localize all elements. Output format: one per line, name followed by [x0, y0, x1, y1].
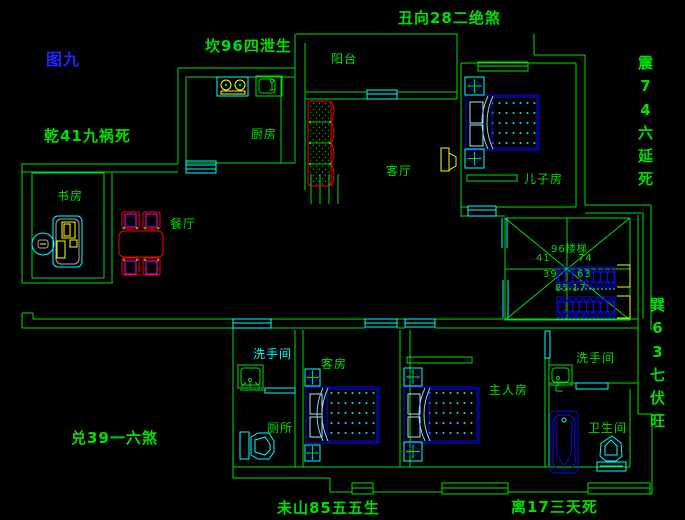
- figure-caption: 图九: [46, 46, 80, 70]
- annotation-right-lower: 巽63七伏旺: [648, 294, 668, 434]
- annotation-left-upper: 乾41九祸死: [44, 125, 131, 146]
- chair-icon: [122, 212, 139, 229]
- room-label-master: 主人房: [489, 381, 528, 398]
- annotation-top-left: 坎96四泄生: [205, 35, 292, 56]
- nightstand-icon: [465, 149, 484, 168]
- stair-number-se: 17: [572, 283, 587, 294]
- sofa-icon: [308, 101, 334, 186]
- door-icon: [545, 331, 550, 358]
- nightstand-icon: [305, 445, 320, 461]
- stove-icon: [217, 77, 248, 96]
- chair-icon: [143, 258, 160, 275]
- toilet-icon: [597, 436, 626, 471]
- door-icon: [265, 388, 295, 393]
- chair-icon: [122, 258, 139, 275]
- window-icon: [576, 383, 608, 389]
- annotation-bottom-left: 未山85五五生: [277, 497, 380, 518]
- stair-number-e: 63: [577, 269, 592, 280]
- dining-table-icon: [119, 231, 163, 257]
- nightstand-icon: [465, 77, 484, 95]
- window-icon: [468, 206, 496, 216]
- nightstand-icon: [404, 442, 422, 461]
- room-label-dining: 餐厅: [170, 215, 196, 232]
- room-label-living: 客厅: [386, 162, 412, 179]
- annotation-bottom-right: 离17三天死: [511, 496, 598, 517]
- stair-number-nw: 41: [536, 253, 551, 264]
- kitchen-sink-icon: [256, 76, 282, 96]
- room-label-balcony: 阳台: [331, 50, 357, 67]
- room-label-washroom-b: 洗手间: [576, 349, 615, 366]
- bed-icon: [404, 387, 479, 443]
- office-chair-icon: [32, 233, 54, 255]
- stair-number-sw: 85: [555, 283, 570, 294]
- bathtub-icon: [550, 411, 578, 473]
- windows-doors: [186, 90, 608, 393]
- room-label-guest: 客房: [321, 355, 347, 372]
- bathroom-sink-icon: [238, 365, 263, 388]
- nightstand-icon: [404, 368, 422, 386]
- stair-number-w: 39: [543, 269, 558, 280]
- desk-icon: [53, 216, 82, 267]
- tv-icon: [441, 148, 456, 171]
- toilet-icon: [240, 432, 274, 459]
- bed-icon: [306, 387, 379, 443]
- room-label-washroom-a: 洗手间: [253, 345, 292, 362]
- annotation-top-center: 丑向28二绝煞: [398, 7, 501, 28]
- room-label-sons-room: 儿子房: [524, 170, 563, 187]
- shelf-icon: [467, 175, 517, 181]
- room-label-kitchen: 厨房: [251, 125, 277, 142]
- chair-icon: [143, 212, 160, 229]
- bathroom-sink-icon: [549, 365, 572, 391]
- nightstand-icon: [305, 369, 320, 386]
- room-label-study: 书房: [57, 187, 83, 204]
- room-label-toilet: 厕所: [267, 419, 293, 436]
- shelf-icon: [407, 357, 472, 363]
- annotation-right-upper: 震74六延死: [636, 52, 656, 192]
- dining-chairs: [122, 212, 160, 275]
- room-label-bathroom: 卫生间: [588, 419, 627, 436]
- stair-number-ne: 74: [578, 253, 593, 264]
- bed-icon: [466, 95, 539, 150]
- annotation-left-lower: 兑39一六煞: [71, 427, 158, 448]
- floorplan-canvas: 图九 坎96四泄生 丑向28二绝煞 乾41九祸死 震74六延死 巽63七伏旺 兑…: [0, 0, 685, 520]
